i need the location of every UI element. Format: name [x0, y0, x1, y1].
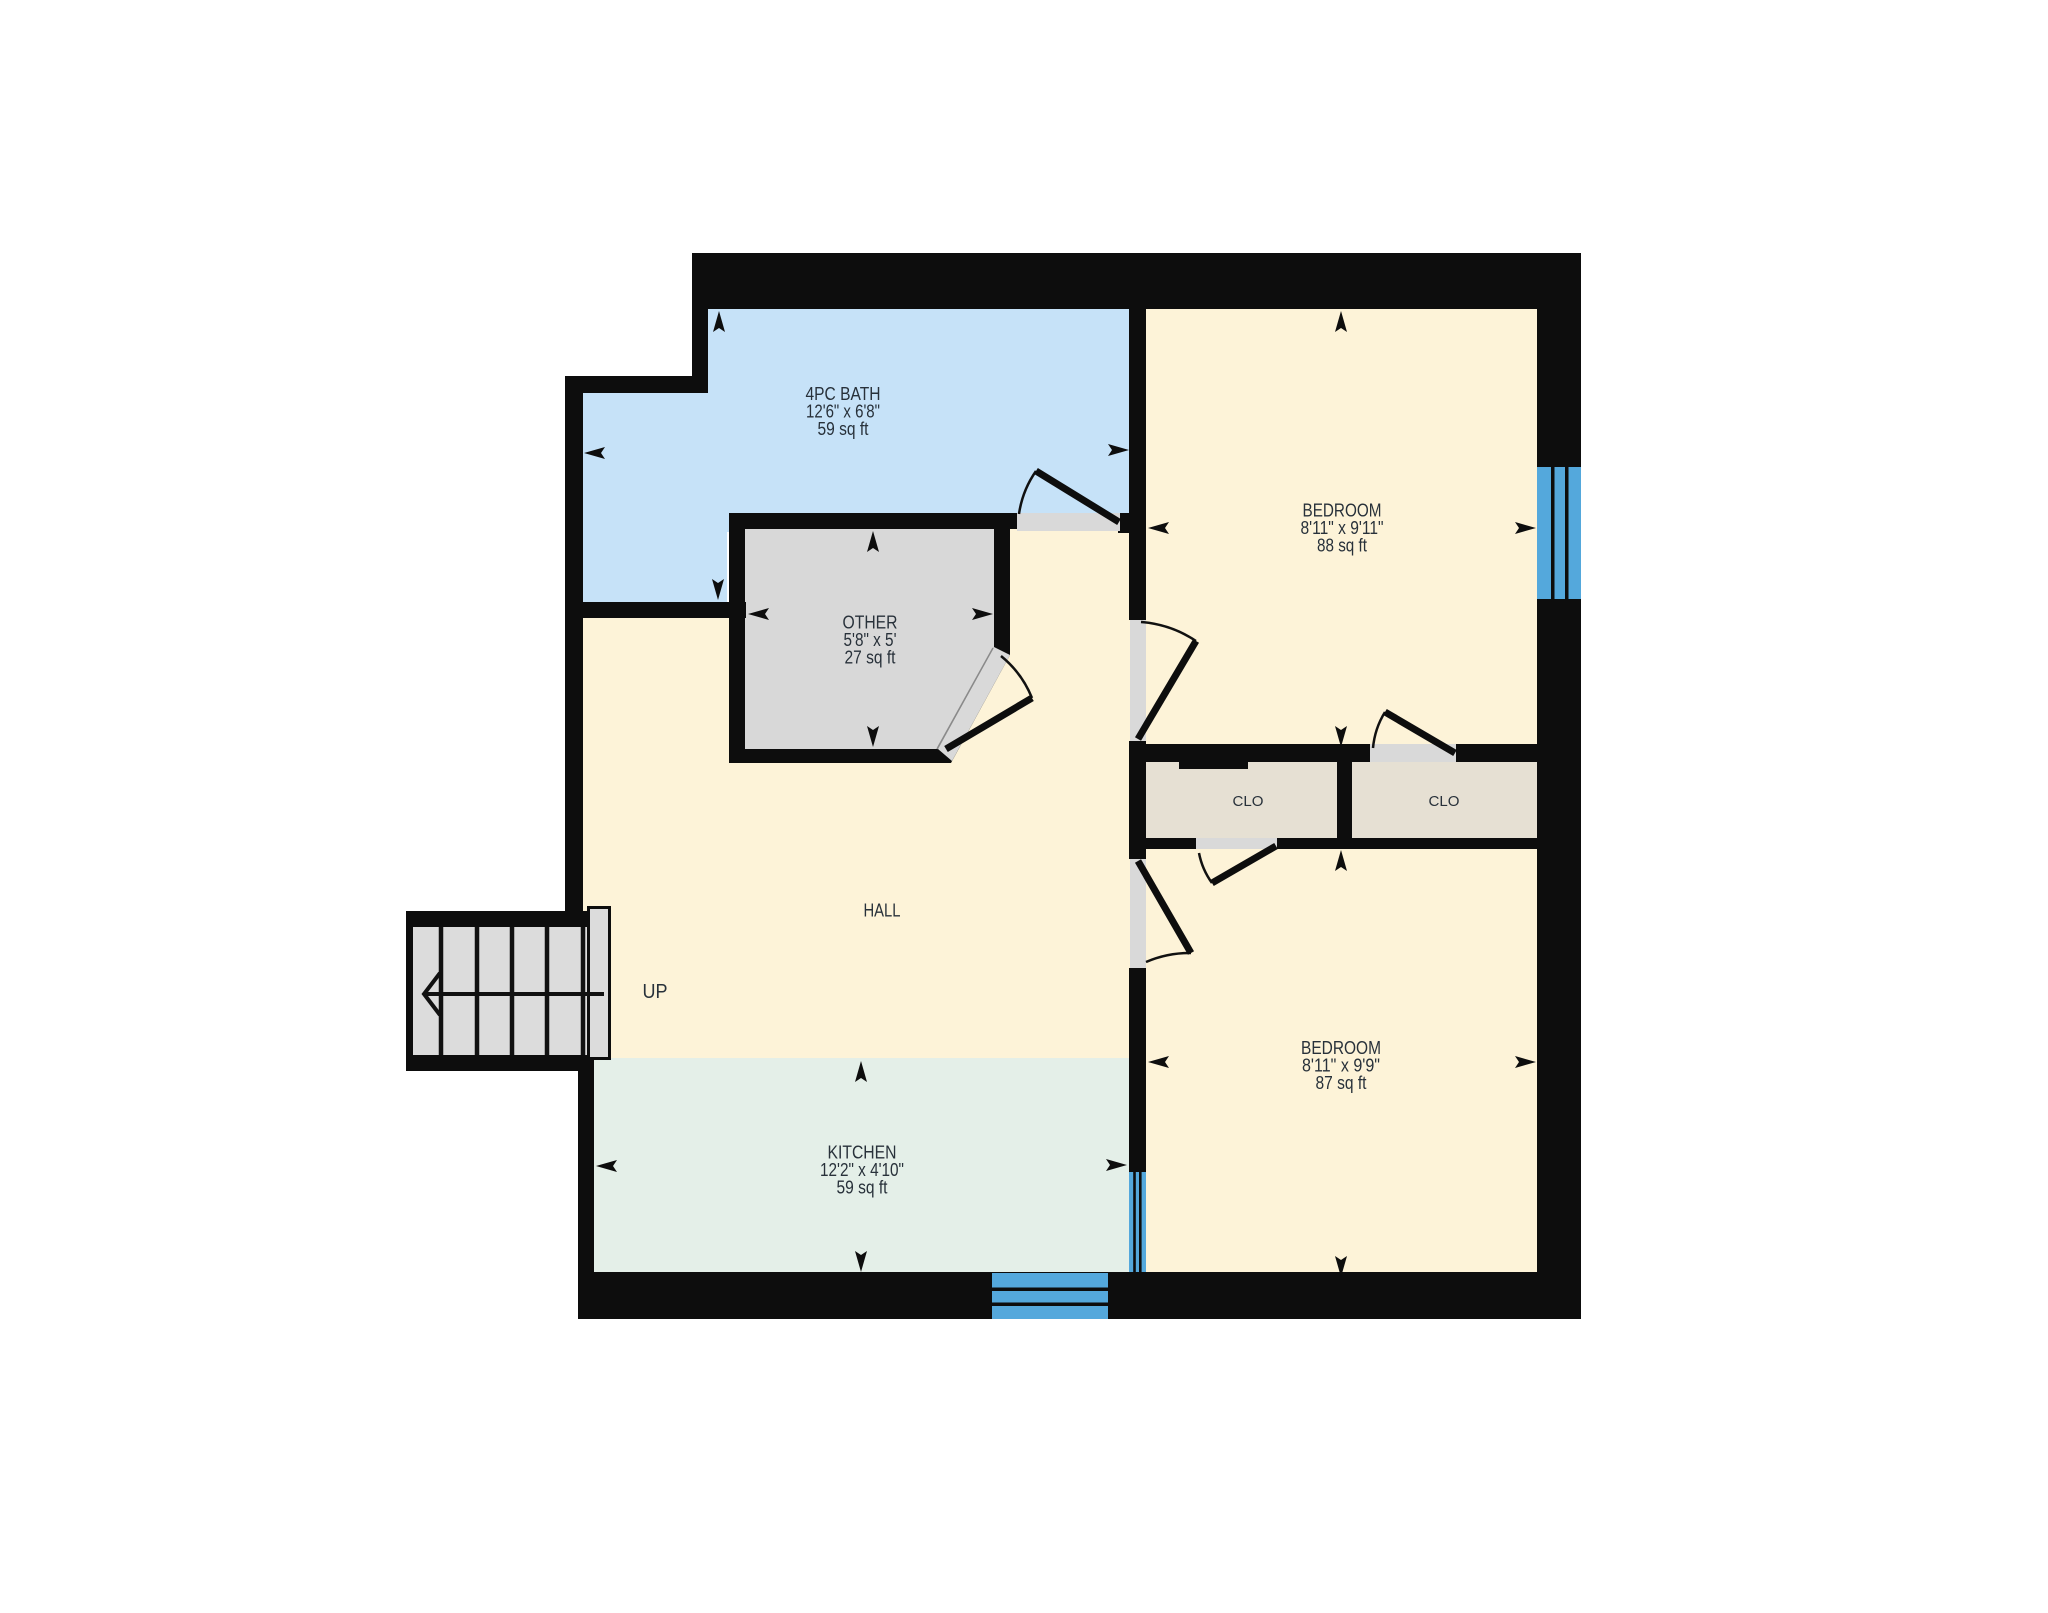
svg-text:UP: UP	[643, 981, 668, 1003]
svg-text:27 sq ft: 27 sq ft	[845, 647, 896, 668]
svg-text:59 sq ft: 59 sq ft	[818, 418, 869, 439]
svg-text:87 sq ft: 87 sq ft	[1316, 1072, 1367, 1093]
svg-text:CLO: CLO	[1429, 793, 1460, 810]
svg-text:HALL: HALL	[864, 900, 901, 921]
svg-text:88 sq ft: 88 sq ft	[1317, 535, 1367, 556]
svg-text:CLO: CLO	[1233, 793, 1264, 810]
svg-text:59 sq ft: 59 sq ft	[837, 1177, 888, 1198]
